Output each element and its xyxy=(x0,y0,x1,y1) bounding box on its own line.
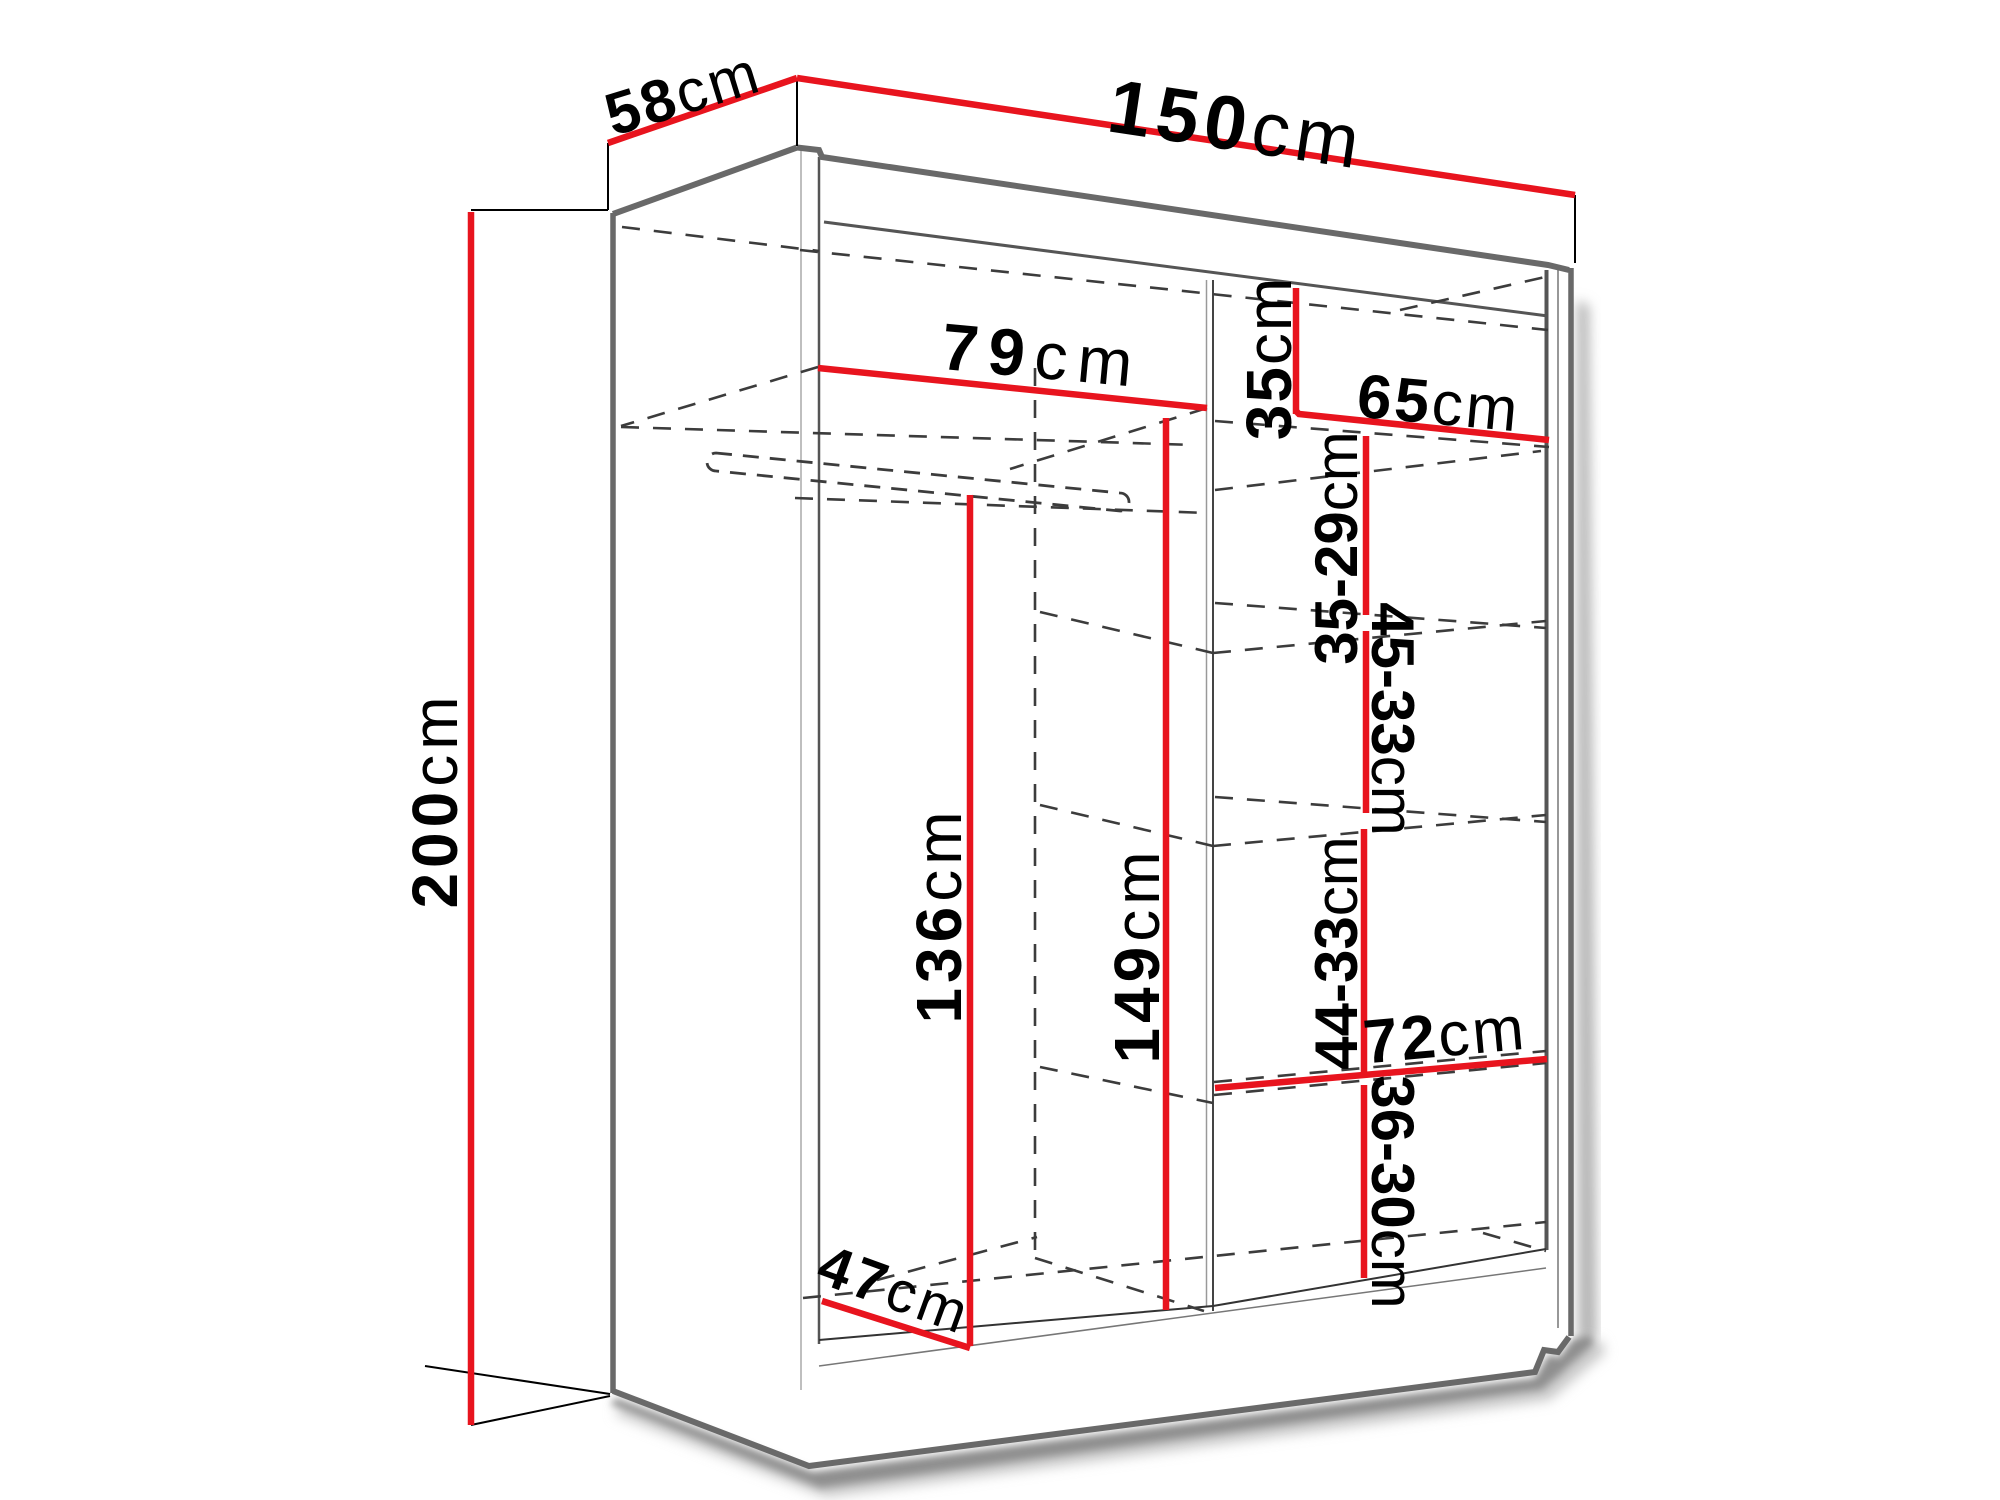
svg-text:200cm: 200cm xyxy=(399,691,471,908)
svg-text:36-30cm: 36-30cm xyxy=(1359,1075,1426,1308)
svg-text:44-33cm: 44-33cm xyxy=(1303,836,1370,1069)
svg-text:35cm: 35cm xyxy=(1233,276,1305,441)
svg-text:45-33cm: 45-33cm xyxy=(1359,602,1426,835)
svg-text:150cm: 150cm xyxy=(1103,64,1371,186)
svg-text:136cm: 136cm xyxy=(903,806,975,1023)
svg-text:79cm: 79cm xyxy=(938,309,1145,401)
svg-text:58cm: 58cm xyxy=(597,38,768,148)
svg-text:47cm: 47cm xyxy=(809,1232,980,1347)
svg-text:149cm: 149cm xyxy=(1101,846,1173,1063)
